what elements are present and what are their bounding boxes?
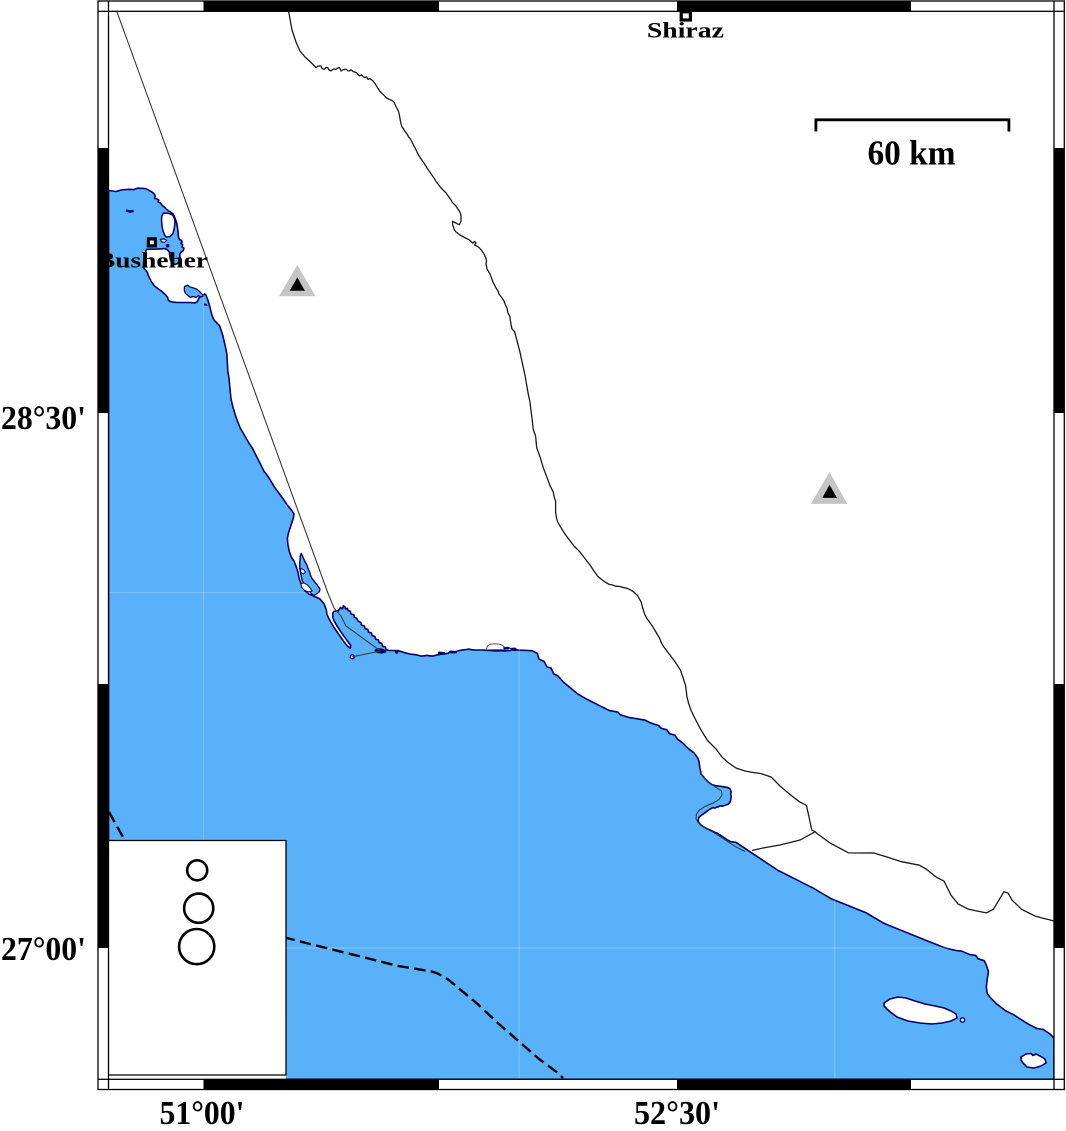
- svg-text:60 km: 60 km: [868, 134, 956, 173]
- svg-text:Busheher: Busheher: [97, 247, 208, 272]
- svg-text:Shiraz: Shiraz: [647, 18, 724, 43]
- svg-text:27°00': 27°00': [1, 931, 86, 968]
- svg-text:51°00': 51°00': [160, 1095, 245, 1126]
- svg-text:28°30': 28°30': [1, 400, 86, 437]
- svg-text:52°30': 52°30': [634, 1095, 720, 1126]
